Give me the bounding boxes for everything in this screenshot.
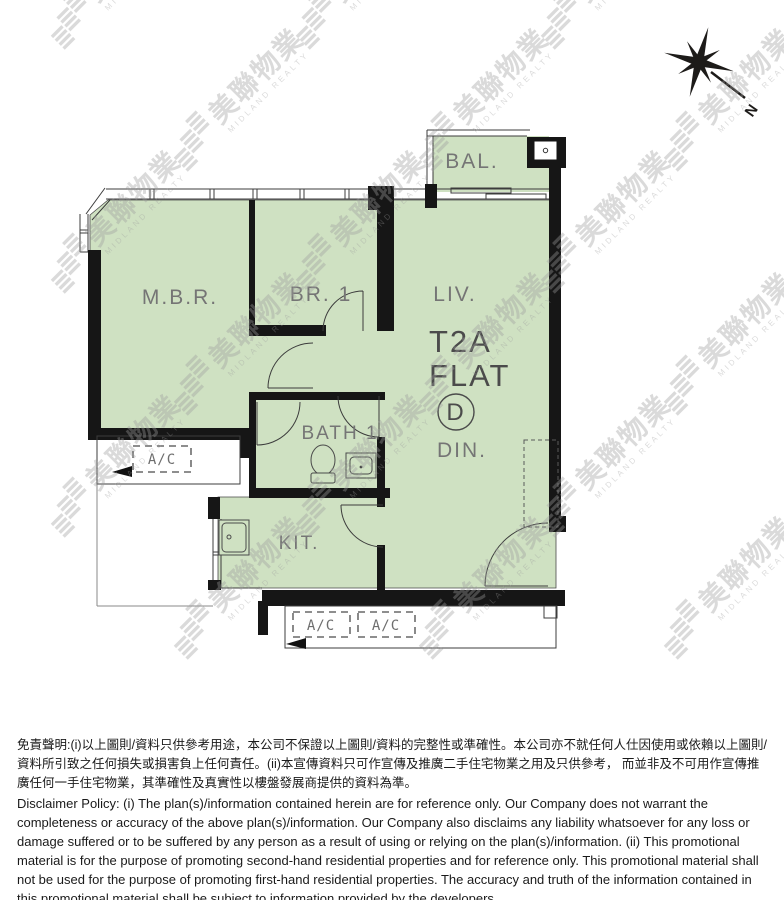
ac-label-bottom-1: A/C	[307, 618, 335, 634]
balcony-drain	[534, 141, 557, 160]
floor-plan-canvas: 美聯物業 MIDLAND REALTY	[0, 0, 784, 735]
ac-label-bottom-2: A/C	[372, 618, 400, 634]
unit-flat-letter: D	[446, 399, 465, 426]
drain-arrow-icon	[286, 638, 306, 649]
floor-plan-page: 美聯物業 MIDLAND REALTY	[0, 0, 784, 900]
kitchen-sink-fixture	[219, 520, 249, 555]
disclaimer-chinese: 免責聲明:(i)以上圖則/資料只供參考用途，本公司不保證以上圖則/資料的完整性或…	[17, 736, 770, 793]
room-label-liv: LIV.	[433, 283, 476, 306]
disclaimer-block: 免責聲明:(i)以上圖則/資料只供參考用途，本公司不保證以上圖則/資料的完整性或…	[17, 736, 770, 900]
room-label-bal: BAL.	[445, 150, 499, 173]
disclaimer-english: Disclaimer Policy: (i) The plan(s)/infor…	[17, 794, 770, 900]
room-label-din: DIN.	[437, 439, 487, 462]
room-label-mbr: M.B.R.	[142, 286, 218, 309]
